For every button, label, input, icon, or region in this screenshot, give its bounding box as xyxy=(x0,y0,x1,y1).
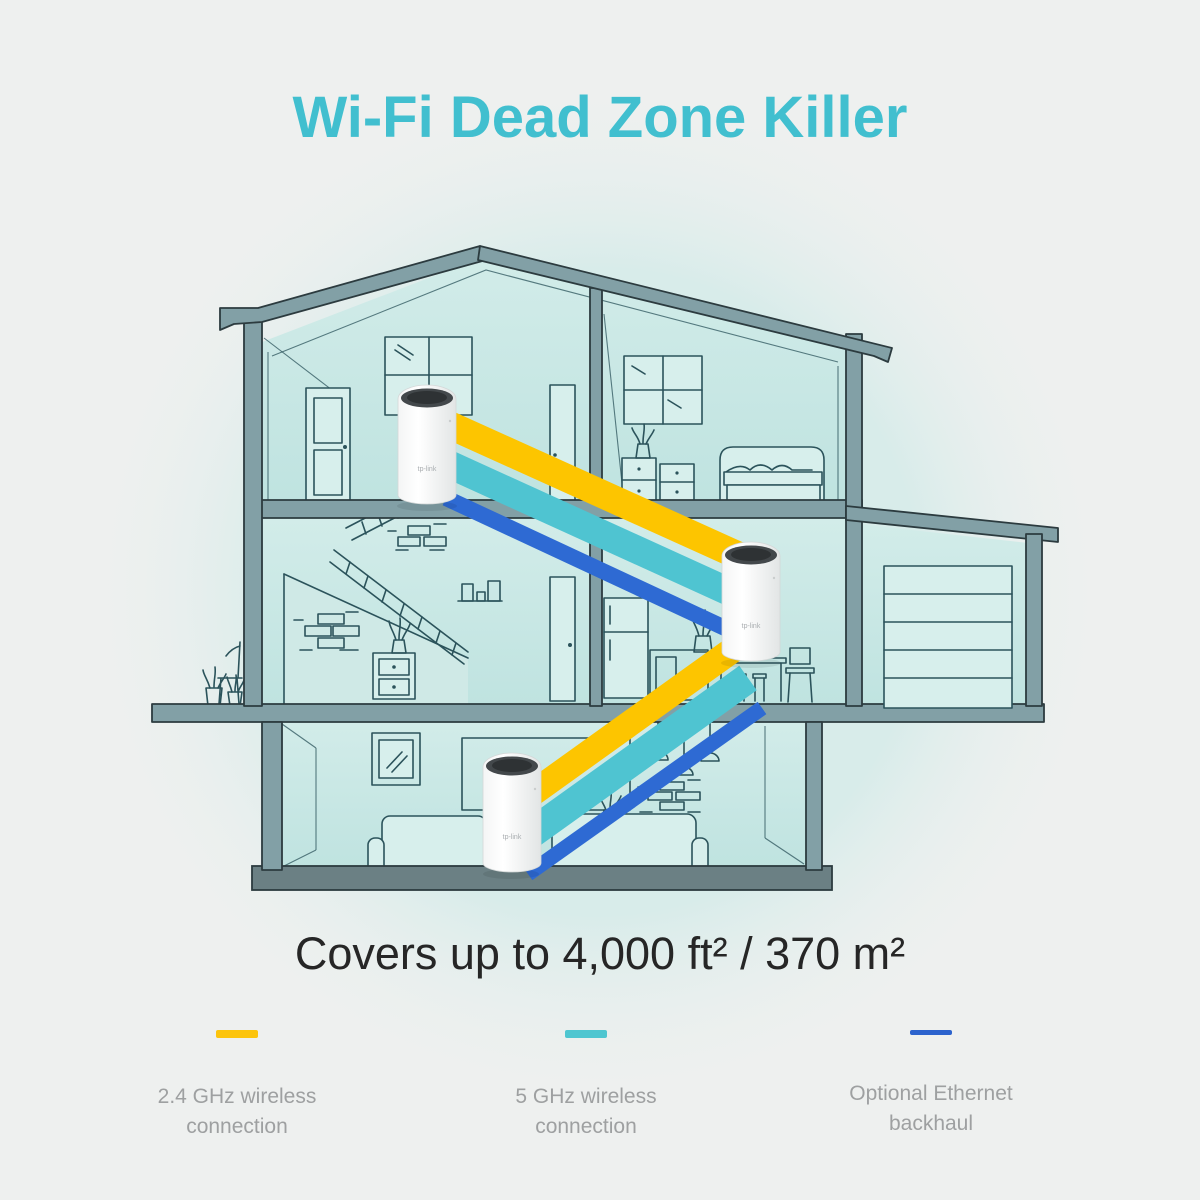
legend-item-24ghz: 2.4 GHz wireless connection xyxy=(107,1030,367,1142)
garage-door xyxy=(884,566,1012,708)
bedroom-window xyxy=(624,356,702,424)
hero-illustration: tp-link xyxy=(0,0,1200,1200)
legend-label-line: connection xyxy=(456,1112,716,1142)
legend-label-5ghz: 5 GHz wireless connection xyxy=(456,1082,716,1142)
bed xyxy=(720,447,824,502)
deco-unit-middle-floor xyxy=(722,542,780,661)
left-wall xyxy=(244,320,262,706)
door xyxy=(306,388,350,503)
deco-unit-bottom-floor xyxy=(483,753,541,872)
legend-label-line: connection xyxy=(107,1112,367,1142)
bottom-left-wall xyxy=(262,722,282,870)
legend-label-line: Optional Ethernet xyxy=(801,1079,1061,1109)
top-divider-wall xyxy=(590,288,602,502)
page: { "title": "Wi-Fi Dead Zone Killer", "co… xyxy=(0,0,1200,1200)
legend: 2.4 GHz wireless connection 5 GHz wirele… xyxy=(0,1030,1200,1180)
legend-item-5ghz: 5 GHz wireless connection xyxy=(456,1030,716,1142)
legend-label-24ghz: 2.4 GHz wireless connection xyxy=(107,1082,367,1142)
legend-swatch-5ghz xyxy=(565,1030,607,1038)
bottom-right-wall xyxy=(806,722,822,870)
mid-floor-door xyxy=(550,577,575,701)
house-cutaway-scene: tp-link xyxy=(0,0,1200,1200)
legend-item-ethernet: Optional Ethernet backhaul xyxy=(801,1030,1061,1139)
legend-swatch-ethernet xyxy=(910,1030,952,1035)
deco-unit-top-floor xyxy=(398,385,456,504)
legend-swatch-24ghz xyxy=(216,1030,258,1038)
legend-label-line: 5 GHz wireless xyxy=(456,1082,716,1112)
page-title: Wi-Fi Dead Zone Killer xyxy=(0,84,1200,151)
picture-frame xyxy=(372,733,420,785)
legend-label-line: backhaul xyxy=(801,1109,1061,1139)
coverage-text: Covers up to 4,000 ft² / 370 m² xyxy=(0,928,1200,980)
garage-right-wall xyxy=(1026,534,1042,706)
legend-label-line: 2.4 GHz wireless xyxy=(107,1082,367,1112)
legend-label-ethernet: Optional Ethernet backhaul xyxy=(801,1079,1061,1139)
